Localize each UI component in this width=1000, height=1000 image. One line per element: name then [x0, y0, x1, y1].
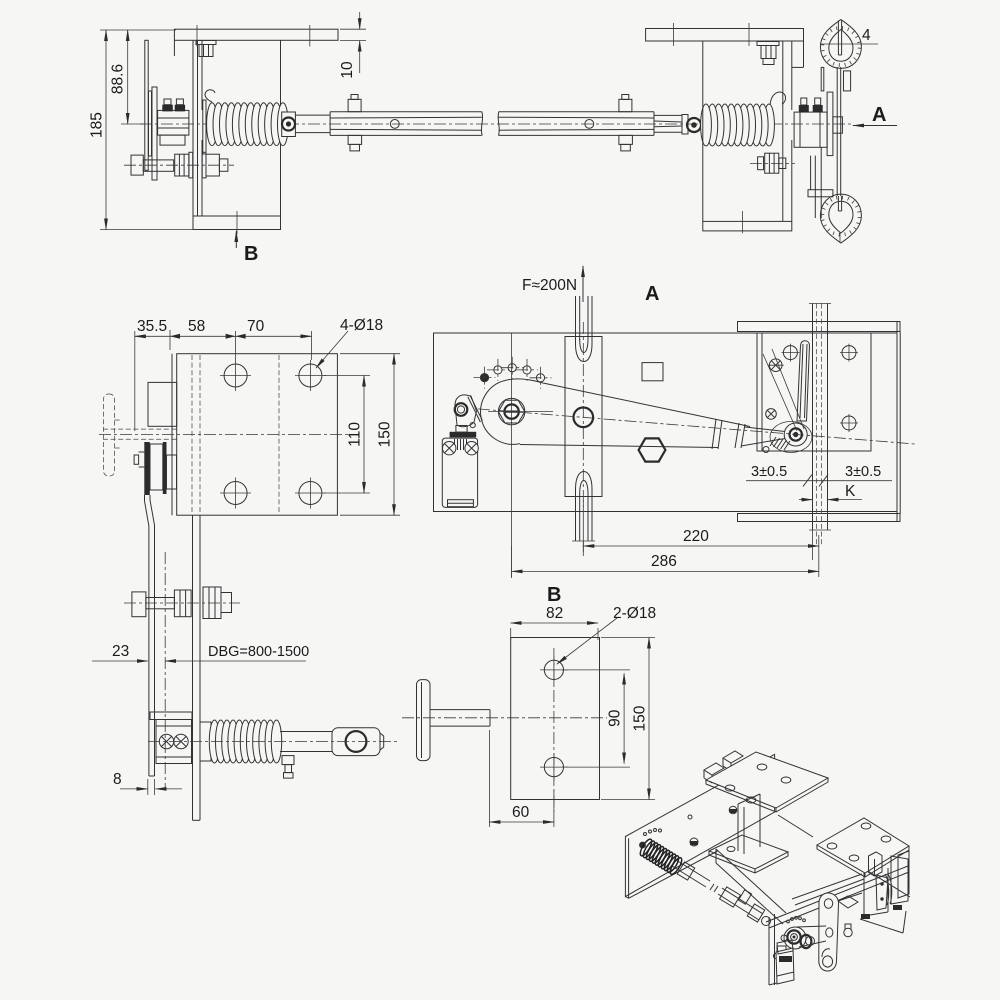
svg-text:286: 286: [651, 553, 677, 570]
svg-text:90: 90: [607, 709, 624, 727]
svg-text:3±0.5: 3±0.5: [845, 464, 881, 480]
svg-text:60: 60: [512, 804, 530, 821]
svg-text:A: A: [645, 283, 659, 305]
svg-text:10: 10: [339, 61, 356, 79]
svg-text:B: B: [547, 584, 561, 606]
svg-text:185: 185: [89, 112, 106, 138]
svg-text:2-Ø18: 2-Ø18: [613, 605, 656, 622]
svg-text:150: 150: [632, 705, 649, 731]
svg-text:23: 23: [112, 643, 129, 660]
svg-text:220: 220: [683, 528, 709, 545]
svg-text:35.5: 35.5: [137, 318, 167, 335]
svg-text:4-Ø18: 4-Ø18: [340, 317, 383, 334]
svg-text:8: 8: [113, 771, 122, 788]
svg-text:A: A: [872, 104, 886, 126]
svg-text:F≈200N: F≈200N: [522, 277, 577, 294]
svg-text:4: 4: [862, 27, 871, 44]
svg-text:58: 58: [188, 318, 205, 335]
svg-text:K: K: [845, 483, 856, 500]
svg-text:3±0.5: 3±0.5: [751, 464, 787, 480]
svg-text:110: 110: [347, 422, 364, 447]
svg-text:B: B: [244, 243, 258, 265]
svg-text:70: 70: [247, 318, 265, 335]
svg-text:82: 82: [546, 605, 563, 622]
svg-text:DBG=800-1500: DBG=800-1500: [208, 644, 309, 660]
svg-text:150: 150: [377, 421, 394, 447]
svg-text:88.6: 88.6: [110, 64, 127, 94]
